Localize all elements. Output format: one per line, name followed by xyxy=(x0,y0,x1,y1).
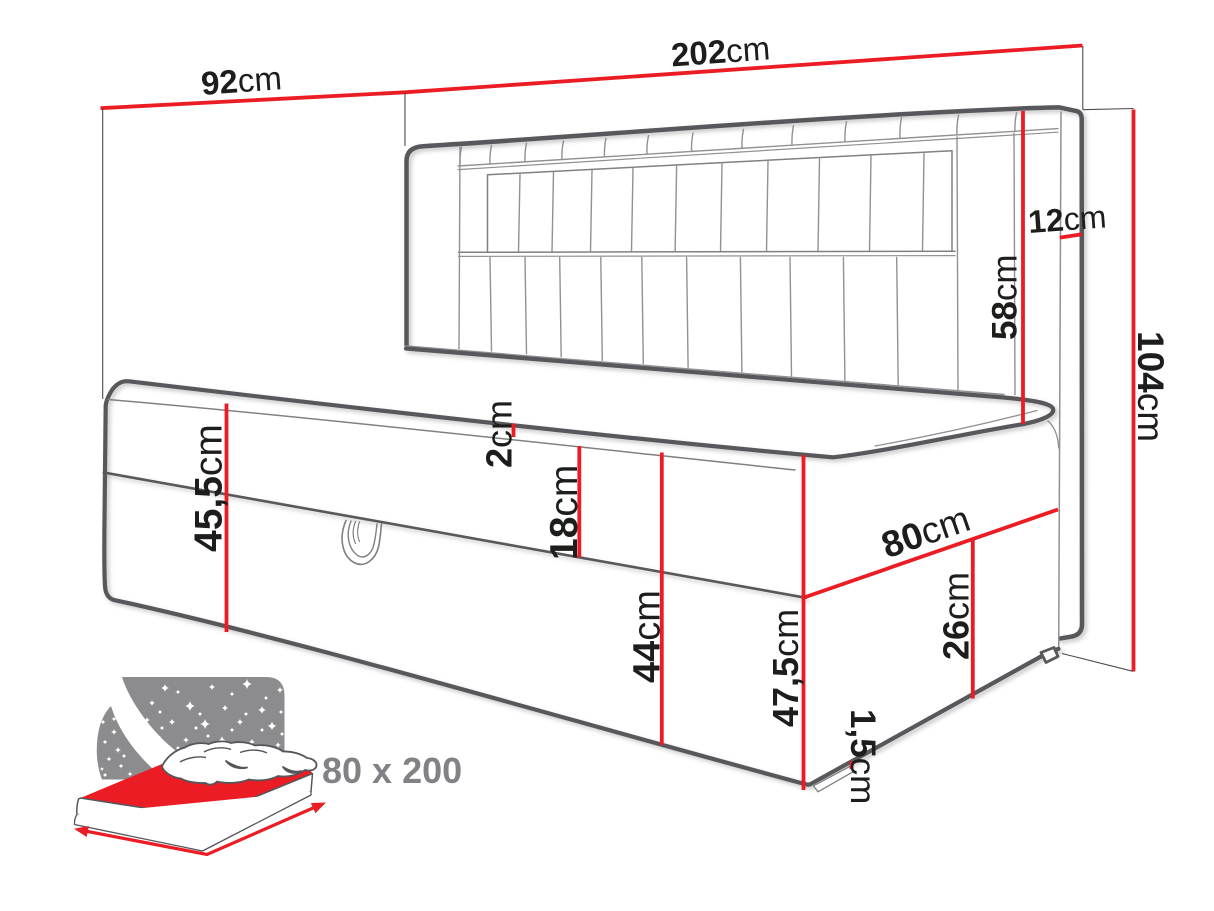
svg-text:47,5cm: 47,5cm xyxy=(765,609,806,727)
svg-text:58cm: 58cm xyxy=(986,254,1025,340)
svg-text:202cm: 202cm xyxy=(670,29,772,73)
svg-text:1,5cm: 1,5cm xyxy=(843,709,882,804)
svg-text:80 x 200: 80 x 200 xyxy=(322,750,462,791)
svg-text:26cm: 26cm xyxy=(936,572,977,660)
svg-text:104cm: 104cm xyxy=(1130,331,1171,442)
svg-text:18cm: 18cm xyxy=(543,465,586,560)
svg-text:44cm: 44cm xyxy=(627,590,669,683)
svg-text:12cm: 12cm xyxy=(1027,198,1108,240)
svg-text:45,5cm: 45,5cm xyxy=(188,424,231,552)
svg-text:2cm: 2cm xyxy=(479,400,520,468)
svg-text:92cm: 92cm xyxy=(200,59,283,102)
